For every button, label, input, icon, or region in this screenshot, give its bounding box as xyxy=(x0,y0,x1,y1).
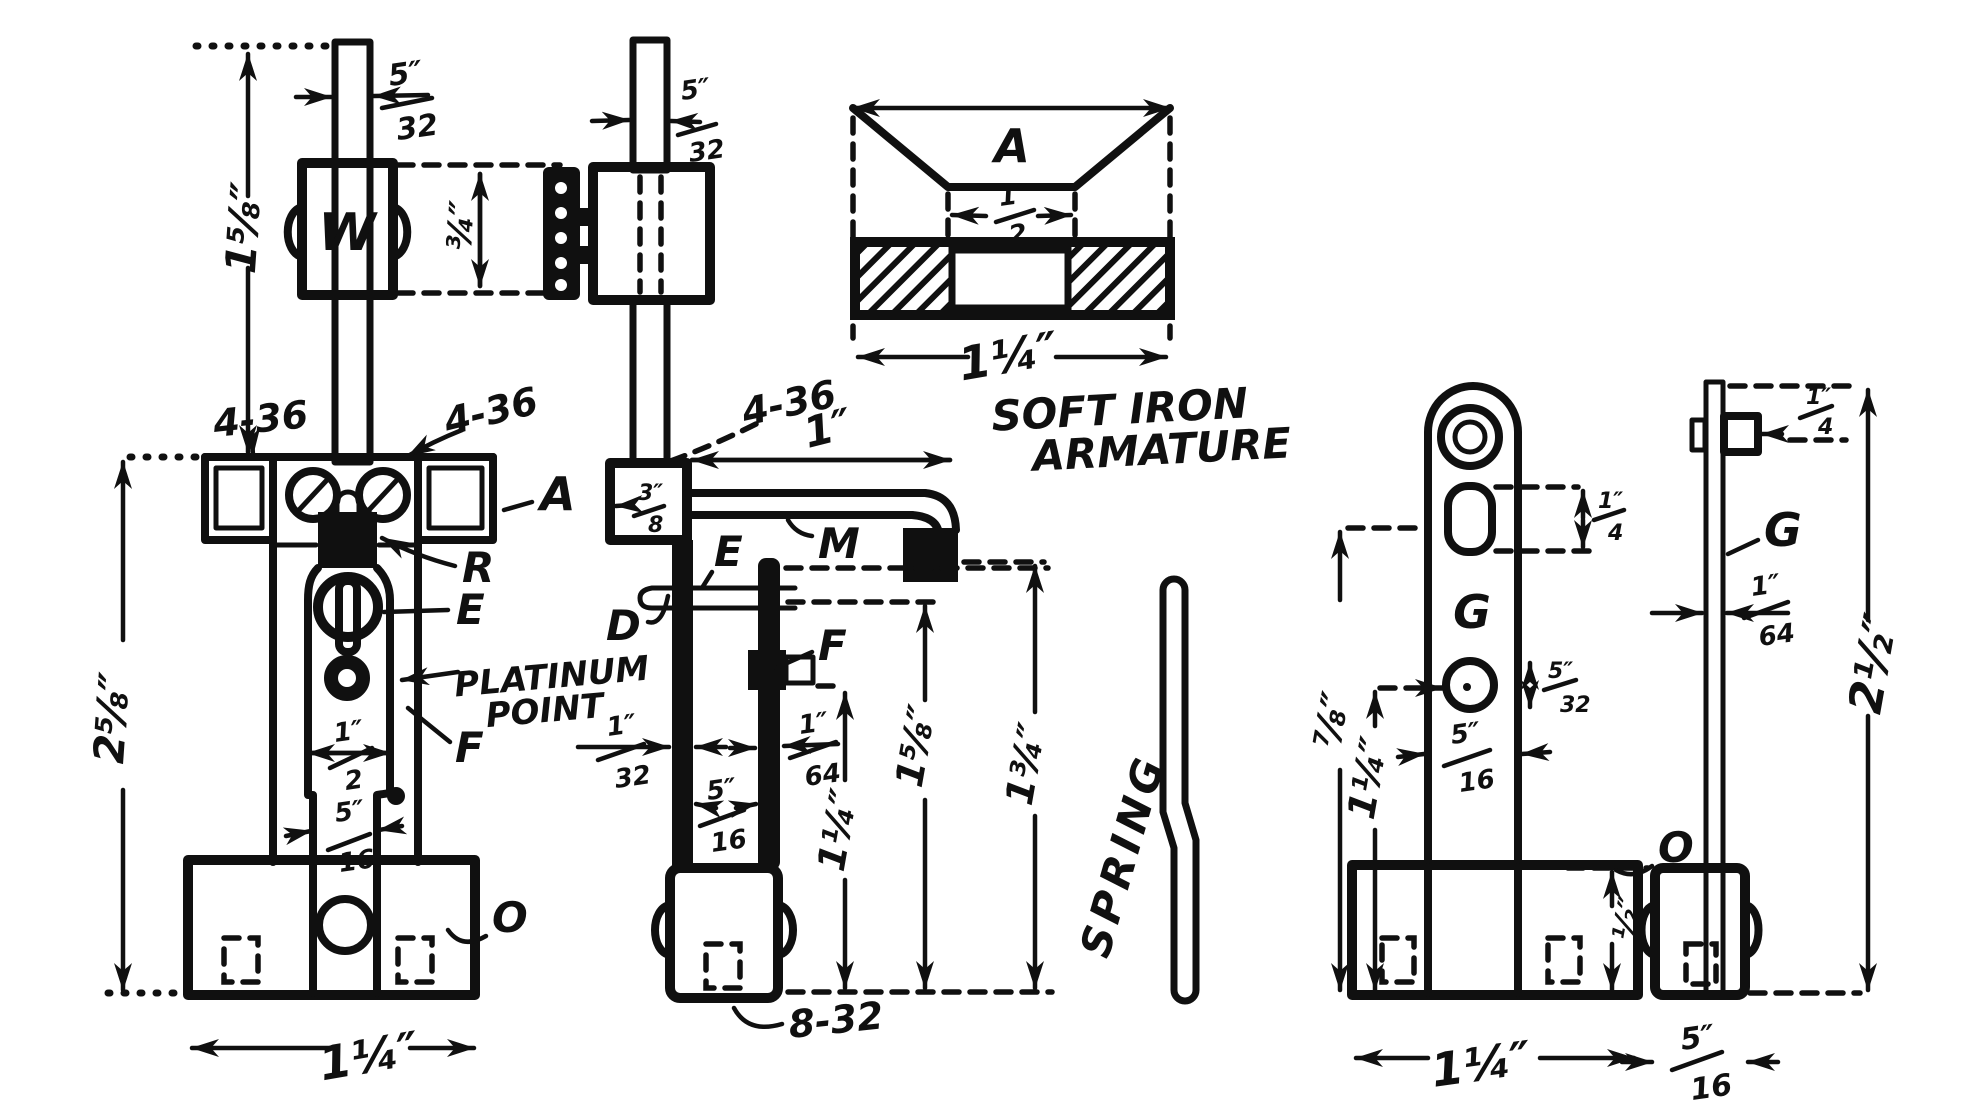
knurled-nut xyxy=(543,167,594,300)
svg-text:5″: 5″ xyxy=(1449,717,1483,751)
side-view: 5″ 32 3″ 8 1″ 4-36 xyxy=(543,40,1055,1047)
svg-text:8: 8 xyxy=(648,513,663,538)
thread-4-36-label: 4-36 xyxy=(210,392,310,446)
dim-strip-gap: 5″ 16 xyxy=(696,773,756,859)
svg-text:2: 2 xyxy=(343,765,365,797)
svg-text:2½″: 2½″ xyxy=(1837,609,1908,717)
spring-front-label: F xyxy=(455,723,484,772)
armature-bar xyxy=(855,242,1170,315)
dim-armature-width: 1¼″ xyxy=(858,321,1166,392)
svg-text:⅞″: ⅞″ xyxy=(1305,688,1358,751)
weight-label: W xyxy=(318,203,378,263)
weight-block: W xyxy=(288,163,408,295)
upper-block-side xyxy=(593,167,710,300)
svg-text:5″: 5″ xyxy=(386,54,425,94)
base-front-label: O xyxy=(492,893,528,942)
svg-text:16: 16 xyxy=(1688,1067,1734,1107)
svg-text:1″: 1″ xyxy=(997,179,1031,213)
svg-text:1⅝″: 1⅝″ xyxy=(216,180,271,275)
base-rear xyxy=(1352,865,1638,995)
dim-upright-width: 5″ 16 xyxy=(1398,717,1550,799)
svg-text:3″: 3″ xyxy=(638,481,663,506)
arm-label: M xyxy=(818,519,860,568)
dim-base-depth-edge: 5″ 16 xyxy=(1622,1018,1778,1108)
eyelet-label: E xyxy=(456,585,485,634)
svg-text:1″: 1″ xyxy=(797,707,831,741)
base-side xyxy=(655,868,793,998)
svg-text:1¼″: 1¼″ xyxy=(315,1021,423,1092)
svg-text:5″: 5″ xyxy=(679,73,713,107)
dim-hole-rear: 5″ 32 xyxy=(1530,659,1591,718)
dim-screw-to-base: 1⅝″ xyxy=(887,606,945,988)
dim-rod-to-bracket: 1⅝″ xyxy=(216,54,271,452)
dim-slot-rear: 1″ 4 xyxy=(1583,489,1624,547)
svg-text:5″: 5″ xyxy=(333,795,367,829)
rod-side-lower xyxy=(633,300,667,463)
svg-text:32: 32 xyxy=(394,107,440,147)
rod-side xyxy=(633,40,667,170)
svg-text:16: 16 xyxy=(1457,764,1497,799)
svg-text:16: 16 xyxy=(709,824,749,859)
dim-base-width-rear: 1¼″ xyxy=(1356,1030,1634,1097)
dim-weight-height: ¾″ xyxy=(440,174,483,286)
dim-overall-height-edge: 2½″ xyxy=(1837,390,1908,990)
svg-text:¾″: ¾″ xyxy=(440,199,483,252)
dim-spring-narrow: 5″ 16 xyxy=(286,795,402,879)
clamp-block: 3″ 8 xyxy=(610,463,687,540)
interrupter-drawing: 5″ 32 1⅝″ W ¾″ xyxy=(0,0,1975,1120)
spring-detail: SPRING xyxy=(1070,579,1196,1001)
upright-rear-label: G xyxy=(1453,585,1491,639)
svg-text:1⅝″: 1⅝″ xyxy=(887,701,945,790)
upright-edge-label: G xyxy=(1764,503,1802,557)
eyelet-side-label: E xyxy=(714,527,743,576)
armature-detail: A 1″ 2 1¼″ SOFT IRON ARMATURE xyxy=(853,108,1293,481)
svg-text:1″: 1″ xyxy=(1749,569,1783,603)
upright-edge xyxy=(1706,382,1723,995)
spring-strip xyxy=(1163,579,1196,1001)
contact-screw-label: F xyxy=(818,621,847,670)
svg-text:4: 4 xyxy=(1607,521,1623,546)
svg-text:32: 32 xyxy=(613,760,653,795)
base-front xyxy=(108,860,475,995)
plate-label: D xyxy=(606,601,641,650)
svg-text:64: 64 xyxy=(1757,618,1797,653)
drawing-sheet: 5″ 32 1⅝″ W ¾″ xyxy=(0,0,1975,1120)
dim-arm-to-base: 1¾″ xyxy=(997,566,1055,988)
dim-spring-wide: 1″ 2 xyxy=(308,715,390,797)
svg-text:1¼″: 1¼″ xyxy=(1428,1030,1535,1097)
svg-text:1¾″: 1¾″ xyxy=(997,719,1055,808)
dim-spring-thickness: 1″ 64 xyxy=(730,707,843,793)
svg-text:5″: 5″ xyxy=(705,773,739,807)
dim-clip-offset: 1″ 4 xyxy=(1800,385,1833,440)
svg-text:1″: 1″ xyxy=(332,715,366,749)
dim-overall-front: 2⅝″ xyxy=(84,462,139,990)
svg-text:32: 32 xyxy=(1560,693,1591,718)
svg-text:1¼″: 1¼″ xyxy=(954,321,1062,392)
dim-base-width-front: 1¼″ xyxy=(192,1021,474,1092)
thread-8-32-label: 8-32 xyxy=(786,993,885,1047)
svg-text:5″: 5″ xyxy=(1678,1018,1717,1058)
svg-text:1¼″: 1¼″ xyxy=(809,785,867,874)
bracket-label: A xyxy=(537,467,576,521)
svg-text:2⅝″: 2⅝″ xyxy=(84,670,139,765)
svg-text:1″: 1″ xyxy=(605,709,639,743)
dim-rod-side: 5″ 32 xyxy=(592,73,727,169)
armature-detail-label: A xyxy=(991,119,1030,173)
svg-text:4: 4 xyxy=(1817,415,1833,440)
spring-note: SPRING xyxy=(1070,748,1175,962)
rear-view: G 1″ 4 5″ 32 5″ 16 ⅞″ 1¼″ xyxy=(1305,386,1694,1098)
